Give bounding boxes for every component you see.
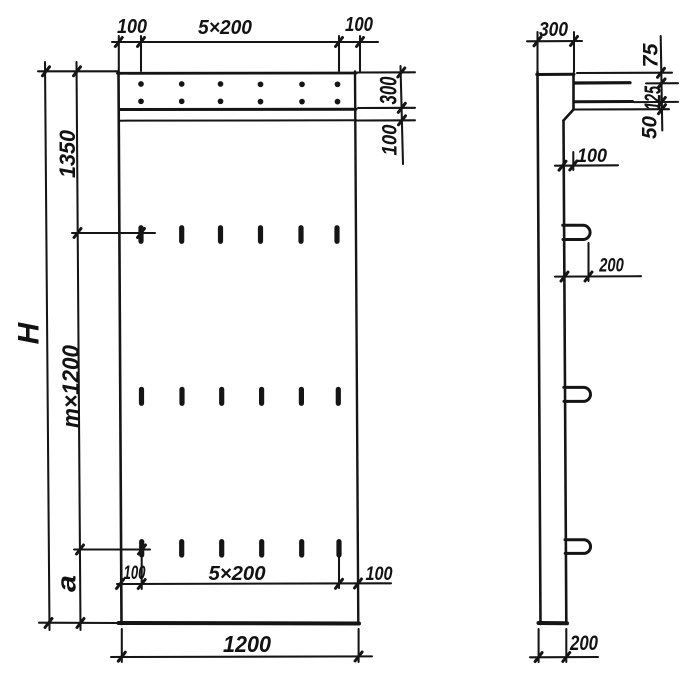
svg-text:200: 200 — [569, 632, 598, 655]
svg-text:1200: 1200 — [223, 631, 271, 657]
svg-text:m×1200: m×1200 — [58, 344, 85, 428]
svg-text:5×200: 5×200 — [198, 17, 252, 39]
svg-text:300: 300 — [376, 76, 403, 104]
svg-text:100: 100 — [379, 124, 402, 155]
svg-text:H: H — [13, 321, 46, 344]
svg-text:1350: 1350 — [55, 129, 80, 178]
svg-text:100: 100 — [577, 146, 607, 167]
svg-text:300: 300 — [539, 19, 568, 41]
svg-text:100: 100 — [366, 564, 393, 585]
svg-text:50: 50 — [639, 116, 662, 139]
svg-text:75: 75 — [640, 43, 663, 67]
svg-text:200: 200 — [598, 256, 624, 277]
svg-text:100: 100 — [124, 563, 146, 584]
svg-text:a: a — [52, 575, 82, 592]
svg-text:100: 100 — [117, 16, 147, 38]
svg-text:100: 100 — [345, 14, 373, 36]
svg-text:5×200: 5×200 — [209, 563, 266, 585]
svg-text:125: 125 — [640, 85, 666, 110]
